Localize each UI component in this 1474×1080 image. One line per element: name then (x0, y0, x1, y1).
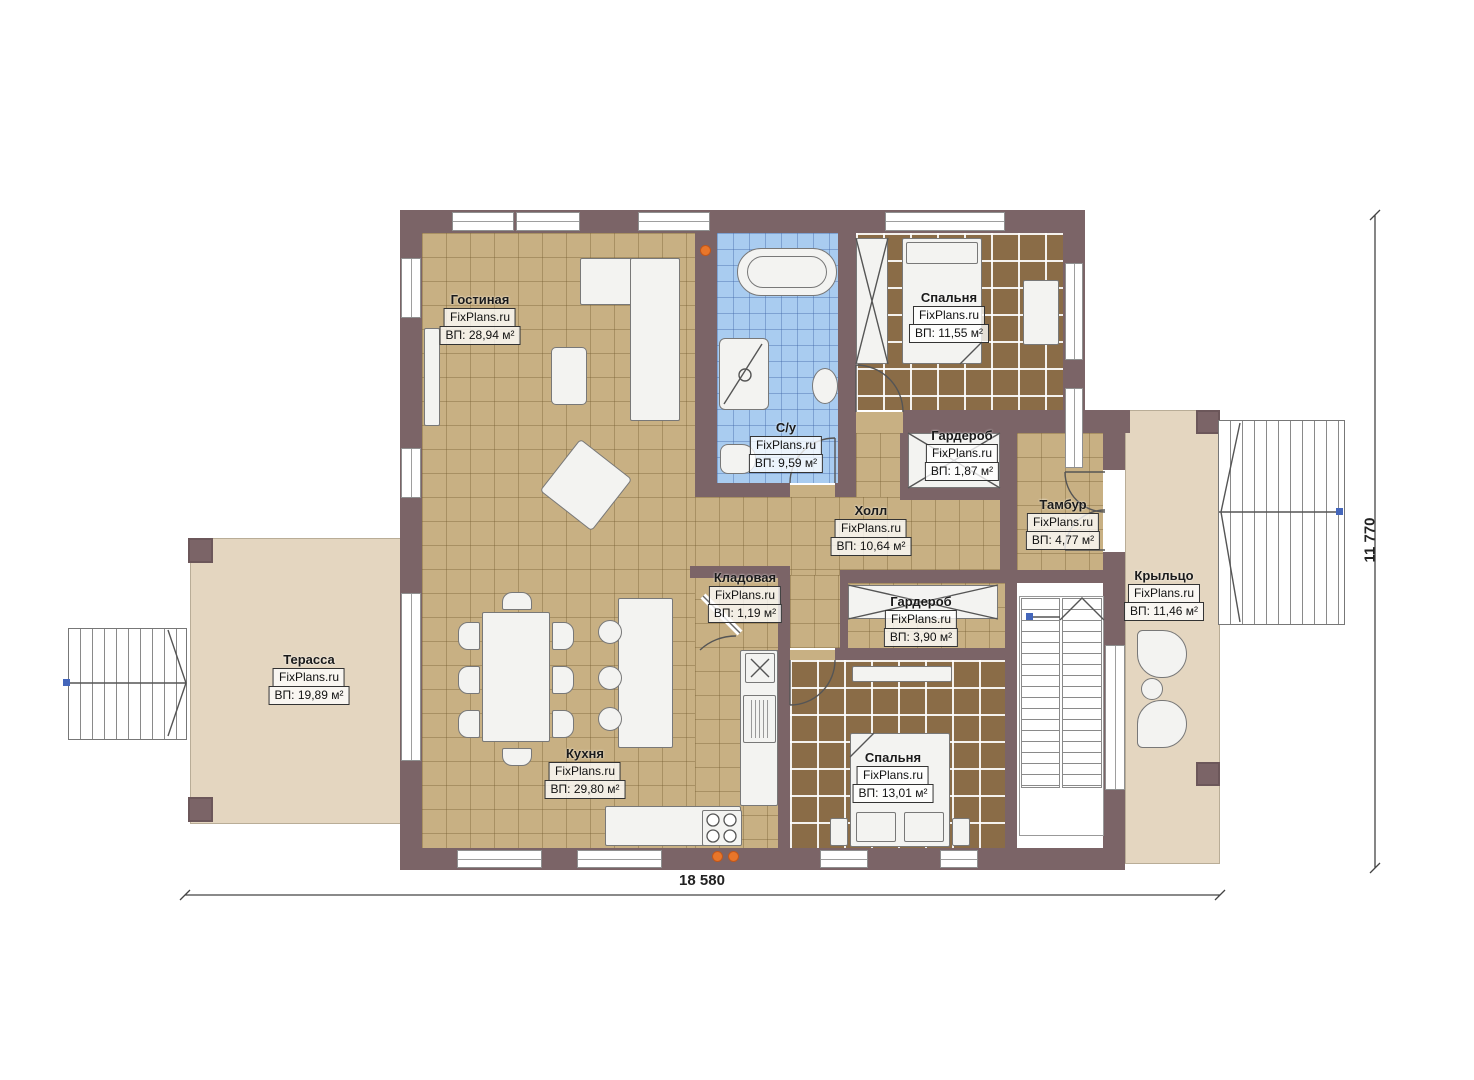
bath-sink (812, 368, 838, 404)
room-label-bedroom2: Спальня FixPlans.ru ВП: 13,01 м² (853, 750, 934, 803)
window-bottom-1 (457, 850, 542, 868)
window-bottom-2 (577, 850, 662, 868)
exterior-stairs-left (68, 628, 187, 740)
room-name: Терасса (283, 652, 335, 667)
room-name: Гардероб (931, 428, 992, 443)
room-name: Тамбур (1039, 497, 1086, 512)
dining-chair (502, 748, 532, 766)
marker-dot (712, 851, 723, 862)
room-watermark: FixPlans.ru (444, 308, 516, 327)
room-area: ВП: 3,90 м² (884, 628, 958, 647)
room-name: Спальня (865, 750, 921, 765)
bedroom1-pillow (906, 242, 978, 264)
marker-dot (728, 851, 739, 862)
bedroom1-closet (856, 238, 888, 364)
shower (719, 338, 769, 410)
window-bottom-4 (940, 850, 978, 868)
stair-flight-right (1062, 598, 1102, 788)
stair-flight-left (1021, 598, 1060, 788)
bedroom1-desk (1023, 280, 1059, 345)
room-name: Гардероб (890, 594, 951, 609)
dining-chair (552, 622, 574, 650)
room-area: ВП: 1,19 м² (708, 604, 782, 623)
bar-stool (598, 707, 622, 731)
terrace-door (401, 593, 421, 761)
bedroom2-nightstand-1 (830, 818, 848, 846)
door-gap-bedroom2 (790, 650, 835, 660)
dining-chair (502, 592, 532, 610)
porch-pillar-bottom (1196, 762, 1220, 786)
room-name: Кладовая (714, 570, 776, 585)
room-name: Кухня (566, 746, 604, 761)
dining-chair (552, 710, 574, 738)
bar-stool (598, 620, 622, 644)
room-label-wardrobe2: Гардероб FixPlans.ru ВП: 3,90 м² (884, 594, 958, 647)
room-watermark: FixPlans.ru (709, 586, 781, 605)
window-bottom-3 (820, 850, 868, 868)
room-area: ВП: 19,89 м² (269, 686, 350, 705)
room-label-bedroom1: Спальня FixPlans.ru ВП: 11,55 м² (909, 290, 989, 343)
wall-bedroom2-top-b (835, 648, 1017, 660)
room-watermark: FixPlans.ru (750, 436, 822, 455)
dining-chair (458, 666, 480, 694)
wall-wardrobe2-left (840, 583, 848, 648)
dining-chair (458, 710, 480, 738)
room-watermark: FixPlans.ru (549, 762, 621, 781)
room-label-porch: Крыльцо FixPlans.ru ВП: 11,46 м² (1124, 568, 1204, 621)
window-left-2 (401, 448, 421, 498)
bedroom2-nightstand-2 (952, 818, 970, 846)
room-area: ВП: 1,87 м² (925, 462, 999, 481)
wall-tambour-left (1000, 433, 1017, 577)
bedroom2-pillow-2 (904, 812, 944, 842)
bedroom2-dresser (852, 666, 952, 682)
room-label-pantry: Кладовая FixPlans.ru ВП: 1,19 м² (708, 570, 782, 623)
room-name: С/у (776, 420, 796, 435)
porch-chair-1 (1137, 630, 1187, 678)
room-watermark: FixPlans.ru (926, 444, 998, 463)
coffee-table (551, 347, 587, 405)
room-area: ВП: 9,59 м² (749, 454, 823, 473)
wall-bath-right (838, 233, 856, 497)
hall-nook-floor (856, 433, 900, 497)
porch-chair-2 (1137, 700, 1187, 748)
corridor-floor (790, 575, 845, 648)
dining-chair (458, 622, 480, 650)
terrace-pillar-top (188, 538, 213, 563)
floor-plan: Гостиная FixPlans.ru ВП: 28,94 м² С/у Fi… (0, 0, 1474, 1080)
room-name: Крыльцо (1134, 568, 1193, 583)
window-left-1 (401, 258, 421, 318)
dining-table (482, 612, 550, 742)
room-area: ВП: 11,55 м² (909, 324, 989, 343)
room-name: Холл (855, 503, 888, 518)
porch-table (1141, 678, 1163, 700)
room-area: ВП: 11,46 м² (1124, 602, 1204, 621)
bedroom2-pillow-1 (856, 812, 896, 842)
stove (702, 810, 742, 846)
door-gap-bedroom1 (856, 412, 903, 433)
wall-bath-bottom-a (695, 483, 790, 497)
dimension-width-label: 18 580 (679, 872, 725, 889)
wall-bedroom1-a (838, 410, 856, 433)
room-name: Спальня (921, 290, 977, 305)
room-watermark: FixPlans.ru (913, 306, 985, 325)
bathtub-inner (747, 256, 827, 288)
window-right-2 (1065, 388, 1083, 468)
room-area: ВП: 4,77 м² (1026, 531, 1100, 550)
kitchen-sink (745, 653, 775, 683)
window-top-1 (452, 212, 514, 231)
room-label-hall: Холл FixPlans.ru ВП: 10,64 м² (831, 503, 912, 556)
terrace-pillar-bottom (188, 797, 213, 822)
room-watermark: FixPlans.ru (1027, 513, 1099, 532)
room-area: ВП: 13,01 м² (853, 784, 934, 803)
window-right-1 (1065, 263, 1083, 360)
room-label-terrace: Терасса FixPlans.ru ВП: 19,89 м² (269, 652, 350, 705)
room-label-bathroom: С/у FixPlans.ru ВП: 9,59 м² (749, 420, 823, 473)
window-top-3 (638, 212, 710, 231)
marker-dot (700, 245, 711, 256)
exterior-stairs-right (1218, 420, 1345, 625)
room-watermark: FixPlans.ru (885, 610, 957, 629)
window-top-2 (516, 212, 580, 231)
room-name: Гостиная (451, 292, 510, 307)
porch-pillar-top (1196, 410, 1220, 434)
dimension-height-label: 11 770 (1362, 517, 1379, 562)
radiator (424, 328, 440, 426)
room-label-kitchen: Кухня FixPlans.ru ВП: 29,80 м² (545, 746, 626, 799)
entrance-opening (1103, 470, 1125, 552)
wall-bedroom2-left (778, 648, 790, 848)
door-gap-bath (790, 485, 835, 497)
dishwasher (743, 695, 776, 743)
room-area: ВП: 29,80 м² (545, 780, 626, 799)
room-label-living: Гостиная FixPlans.ru ВП: 28,94 м² (440, 292, 521, 345)
window-right-3 (1105, 645, 1125, 790)
wall-wardrobe1-left (900, 433, 908, 488)
sofa-vertical (630, 258, 680, 421)
wall-bath-bottom-b (835, 483, 856, 497)
room-area: ВП: 28,94 м² (440, 326, 521, 345)
window-top-4 (885, 212, 1005, 231)
wall-bedroom2-right (1005, 583, 1017, 848)
room-watermark: FixPlans.ru (857, 766, 929, 785)
room-area: ВП: 10,64 м² (831, 537, 912, 556)
room-label-tambour: Тамбур FixPlans.ru ВП: 4,77 м² (1026, 497, 1100, 550)
wall-bath-left (695, 233, 717, 497)
wall-stair-top (840, 570, 1105, 583)
room-label-wardrobe1: Гардероб FixPlans.ru ВП: 1,87 м² (925, 428, 999, 481)
bar-stool (598, 666, 622, 690)
room-watermark: FixPlans.ru (1128, 584, 1200, 603)
kitchen-island (618, 598, 673, 748)
dining-chair (552, 666, 574, 694)
room-watermark: FixPlans.ru (273, 668, 345, 687)
room-watermark: FixPlans.ru (835, 519, 907, 538)
